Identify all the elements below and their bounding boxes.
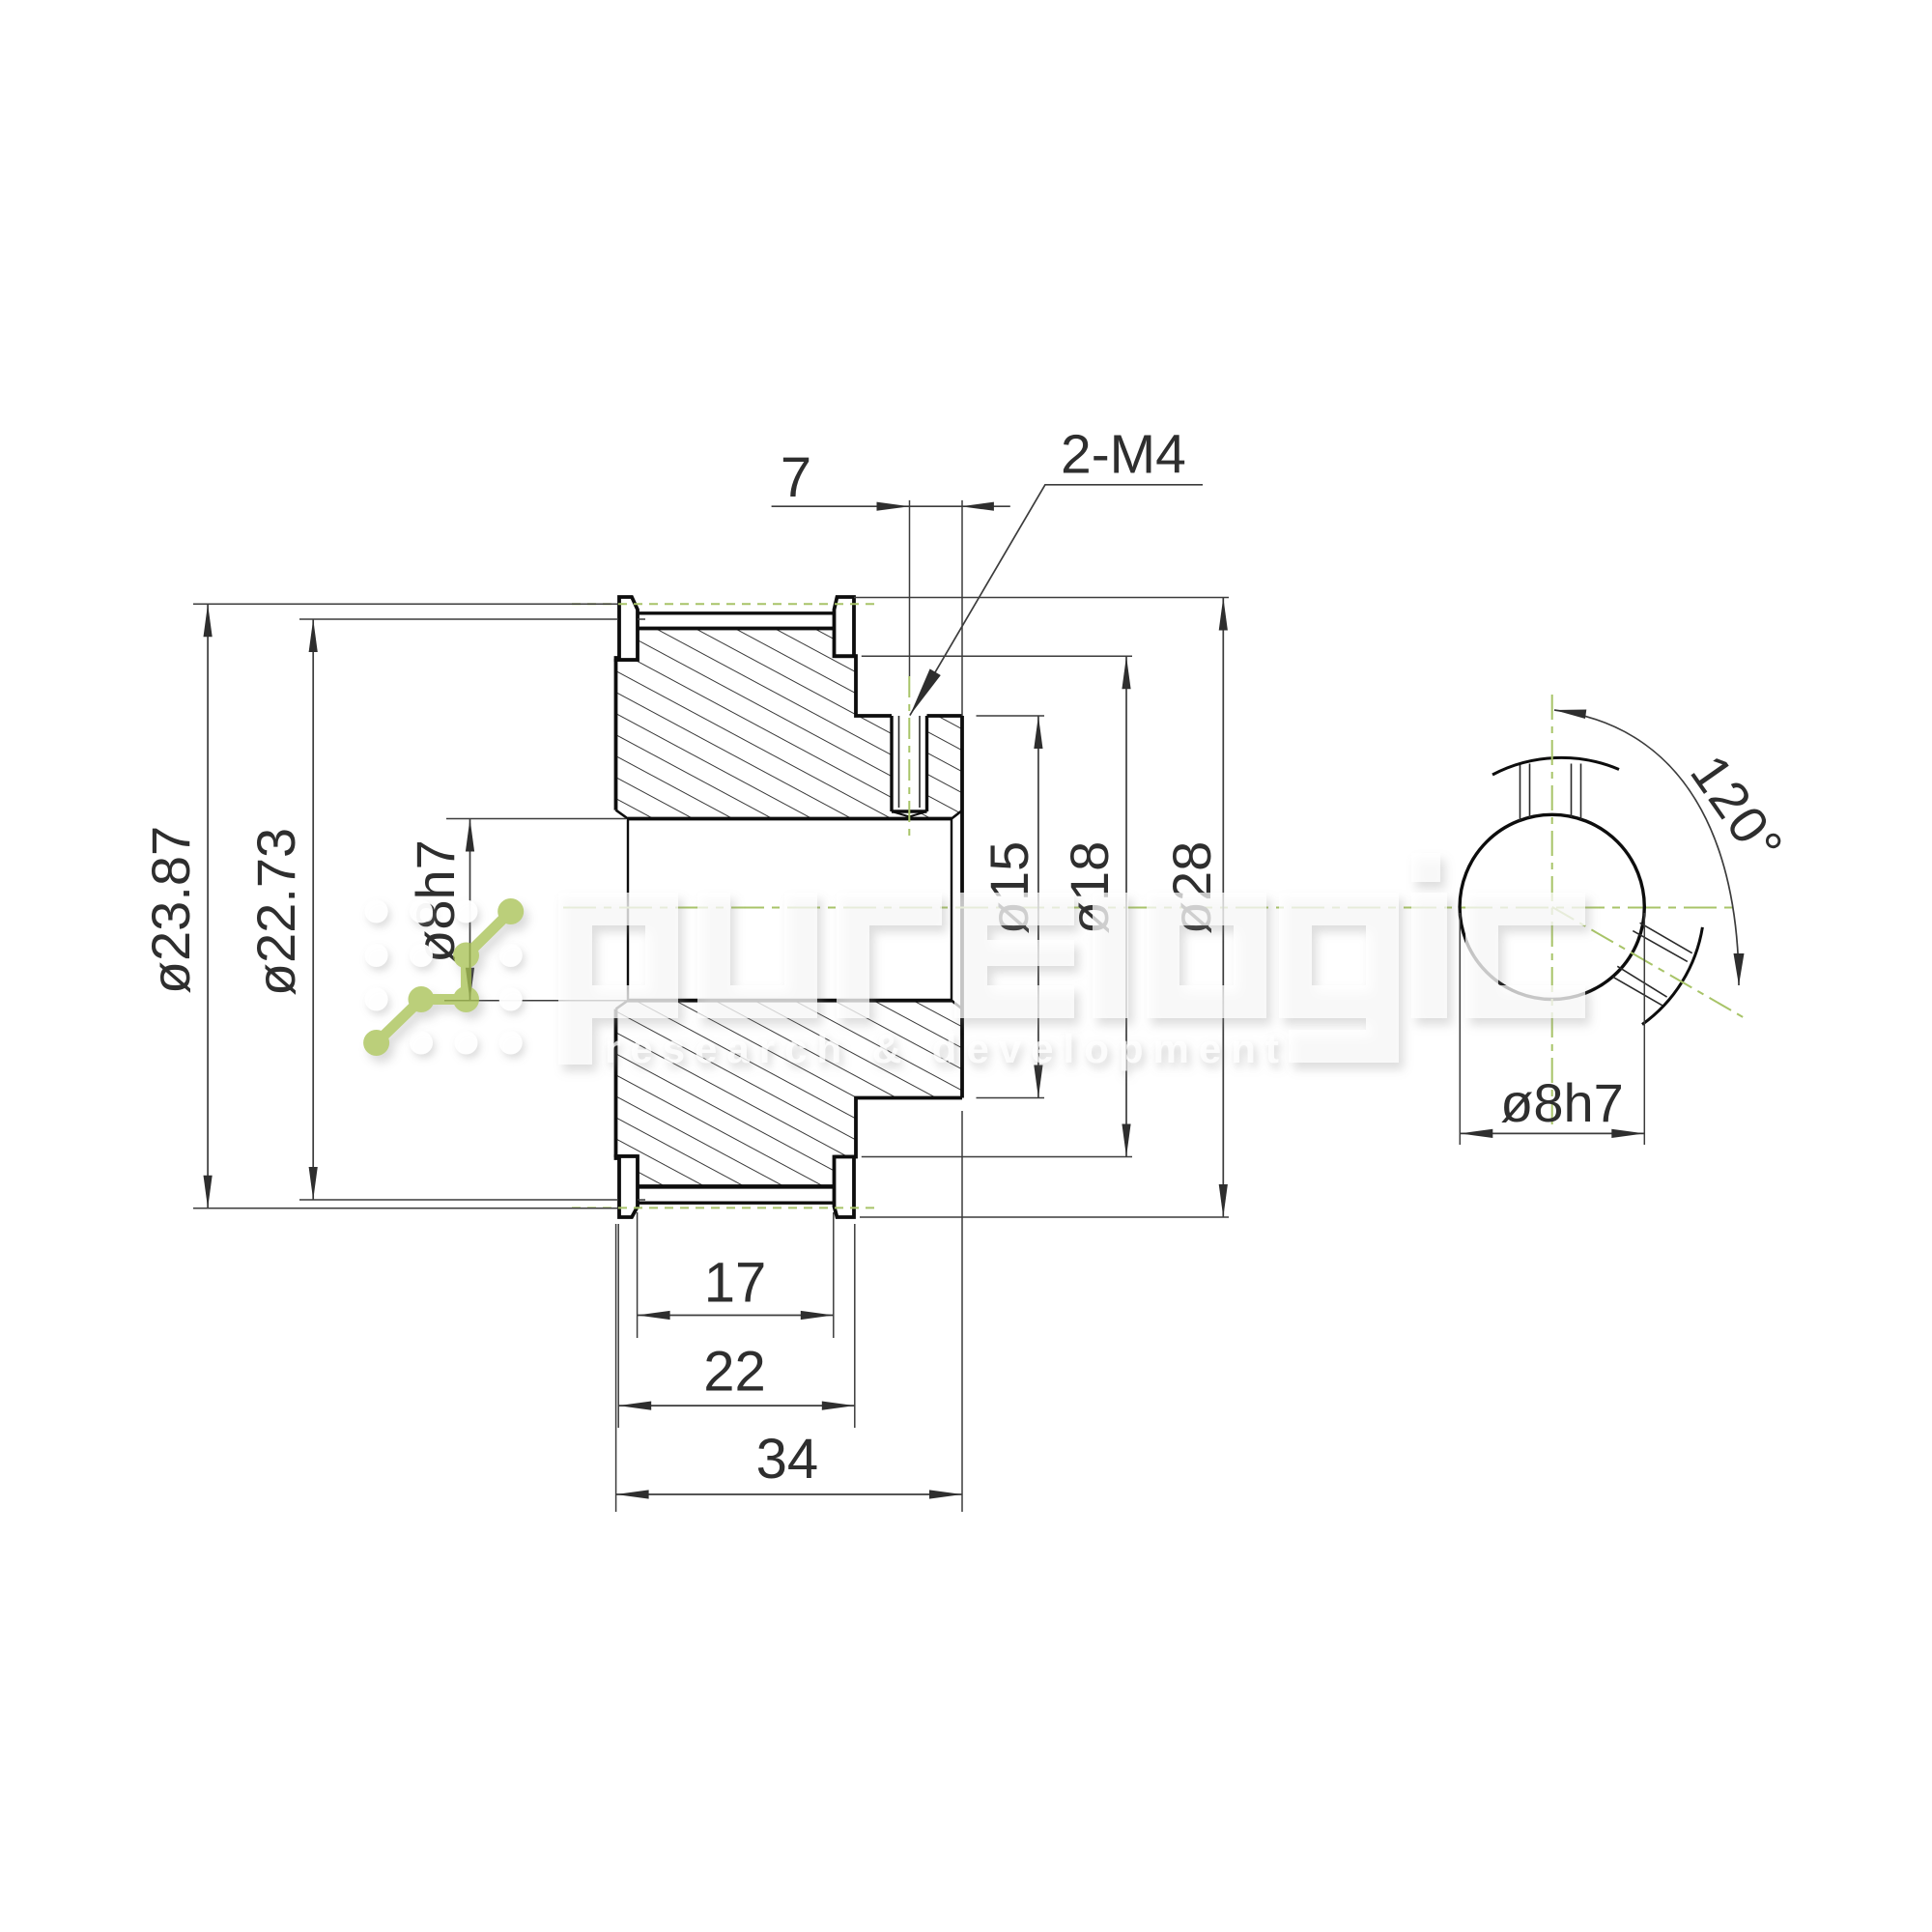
svg-text:ø8h7: ø8h7 xyxy=(405,839,466,963)
svg-text:2-M4: 2-M4 xyxy=(1061,423,1186,485)
svg-text:34: 34 xyxy=(756,1428,819,1491)
svg-text:ø8h7: ø8h7 xyxy=(1500,1072,1624,1133)
svg-text:ø22.73: ø22.73 xyxy=(245,828,306,996)
svg-text:17: 17 xyxy=(704,1252,767,1315)
svg-text:research & development: research & development xyxy=(605,1026,1289,1071)
svg-text:ø23.87: ø23.87 xyxy=(140,826,201,994)
svg-text:7: 7 xyxy=(781,446,811,509)
svg-text:22: 22 xyxy=(703,1341,766,1404)
